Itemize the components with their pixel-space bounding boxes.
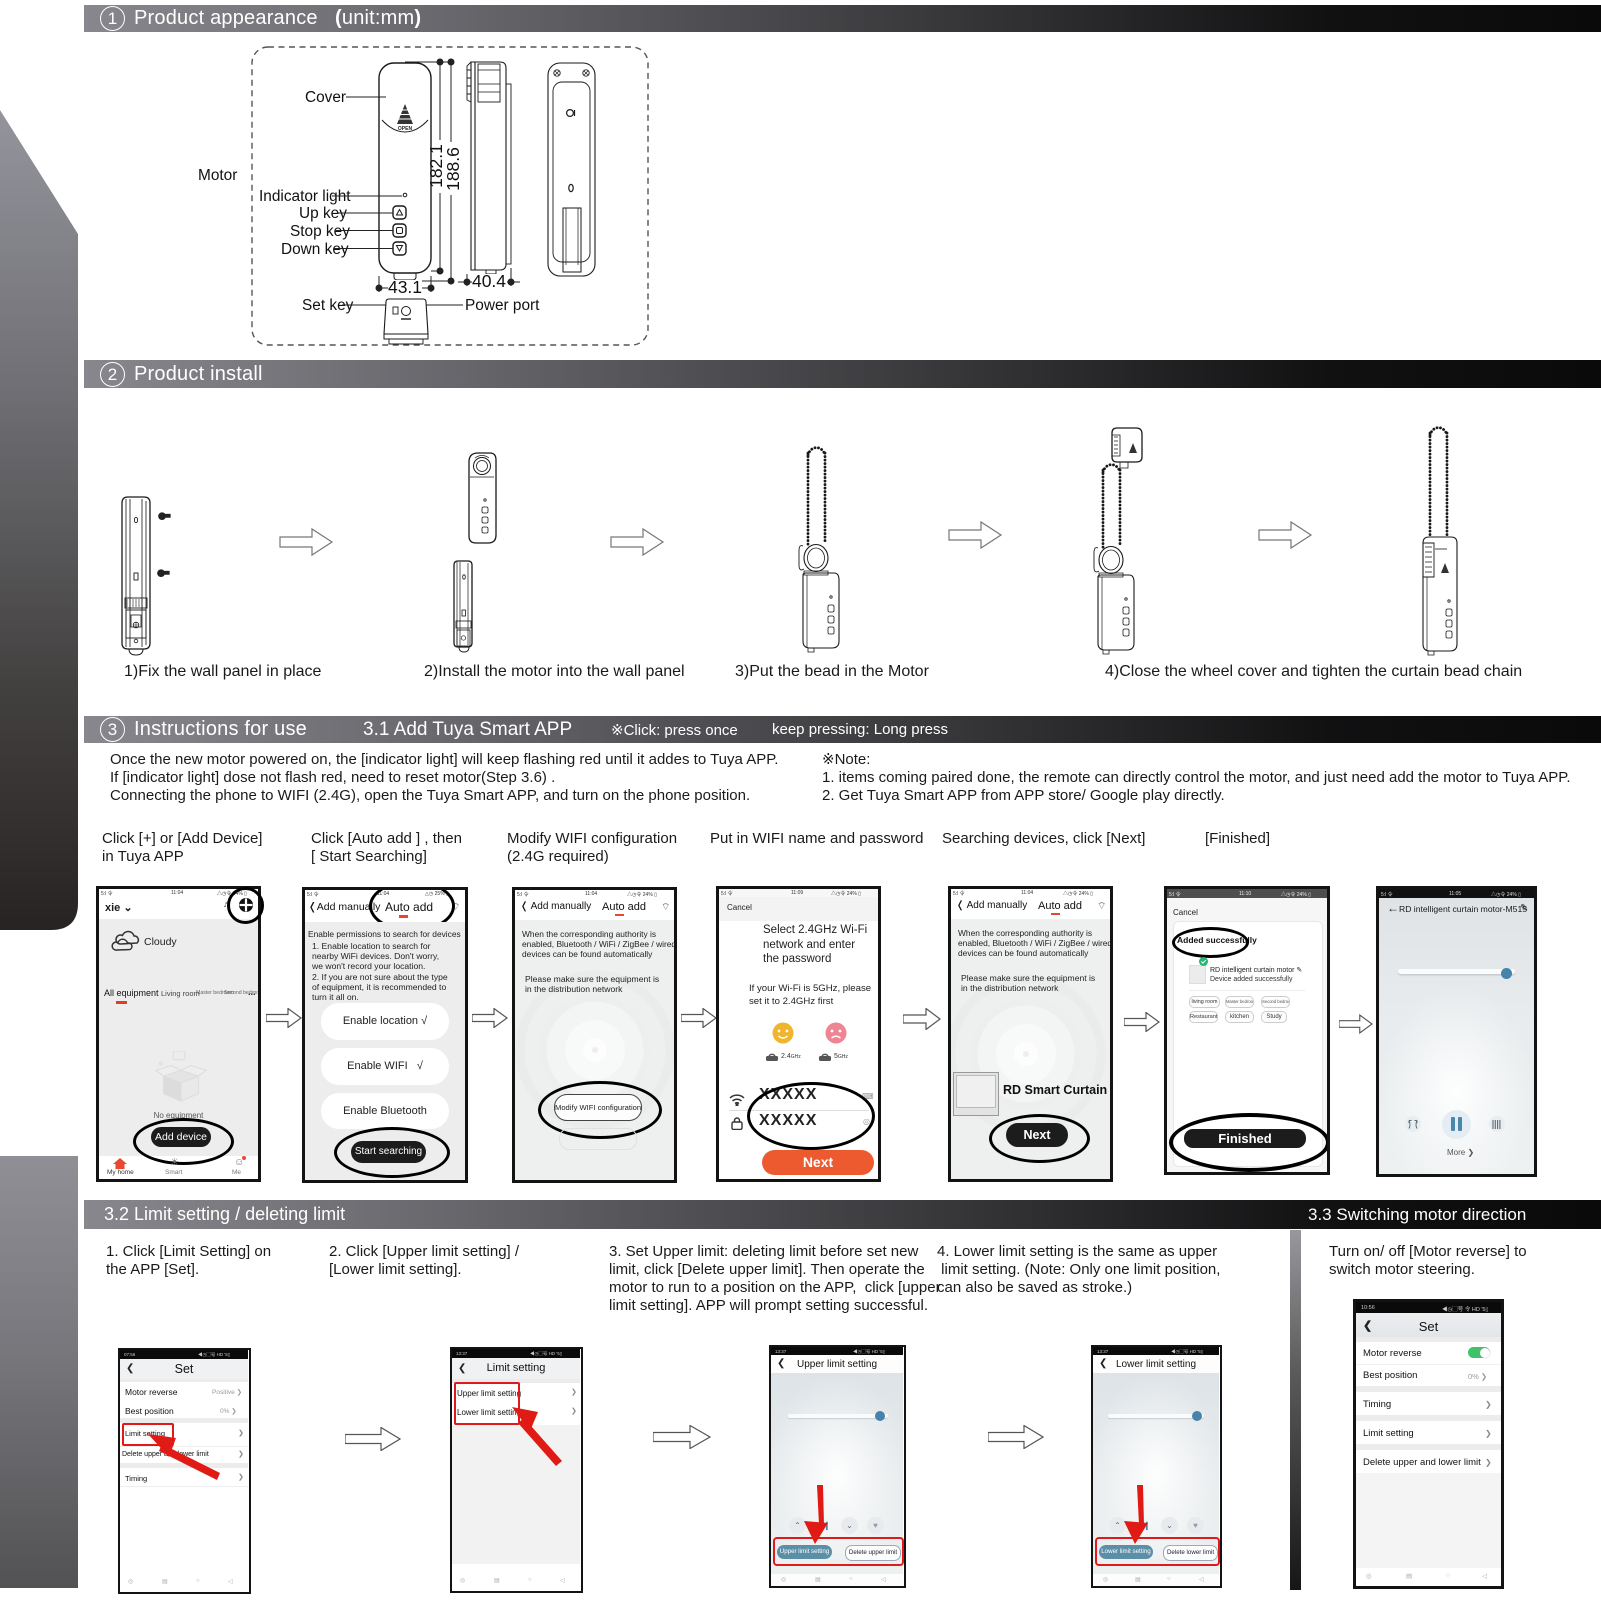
svg-text:43.1: 43.1: [388, 277, 422, 297]
svg-text:Down key: Down key: [281, 241, 349, 258]
svg-text:Motor: Motor: [198, 167, 237, 184]
svg-text:Stop key: Stop key: [290, 223, 350, 240]
svg-text:Power port: Power port: [465, 297, 540, 314]
svg-text:188.6: 188.6: [443, 147, 463, 191]
svg-text:OPEN: OPEN: [398, 126, 413, 132]
svg-text:Cover: Cover: [305, 89, 346, 106]
svg-text:40.4: 40.4: [472, 271, 506, 291]
